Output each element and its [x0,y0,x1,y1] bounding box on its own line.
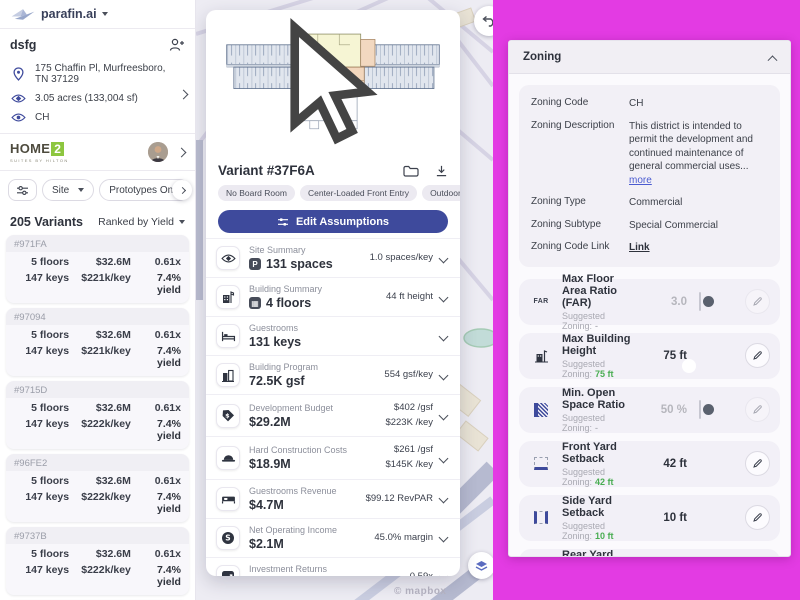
open-space-toggle[interactable] [699,400,701,419]
variants-list: #971FA 5 floors$32.6M0.61x 147 keys$221k… [0,233,195,600]
expand-chevron-icon[interactable] [439,411,449,421]
brand-caret-icon [102,12,108,16]
expand-chevron-icon[interactable] [439,572,449,576]
section-secondary: 1.0 spaces/key [370,251,433,266]
variant-card[interactable]: #9715D 5 floors$32.6M0.61x 147 keys$222k… [6,381,189,449]
filter-settings-button[interactable] [8,179,37,201]
filter-site-caret-icon [78,188,84,192]
zoning-panel-header[interactable]: Zoning [509,41,790,74]
section-value: 131 spaces [266,257,333,271]
mouse-cursor [206,18,460,152]
section-title: Guestrooms Revenue [249,486,366,496]
tag: No Board Room [218,185,295,201]
floorplan-preview [206,10,460,160]
pencil-icon [752,458,763,469]
sliders-icon [277,217,289,227]
control-value: 50 % [641,404,687,416]
zoning-panel: Zoning Zoning Code CH Zoning Description… [508,40,791,557]
layers-3d-icon [475,560,488,572]
zoning-subtype-label: Zoning Subtype [531,219,629,233]
map-attribution: © mapbox [394,586,447,597]
svg-text:S: S [225,533,230,542]
section-title: Net Operating Income [249,525,374,535]
filters-scroll-right-button[interactable] [172,180,192,200]
control-max-building-height: Max Building Height Suggested Zoning:75 … [519,333,780,379]
variant-yield: 7.4% yield [131,272,181,296]
zoning-description-label: Zoning Description [531,120,629,188]
section-secondary: $99.12 RevPAR [366,492,433,507]
control-rear-yard-setback: Rear Yard Setback Suggested Zoning:20 ft… [519,549,780,557]
brand-menu[interactable]: parafin.ai [0,0,195,29]
download-button[interactable] [435,165,448,177]
far-icon: FAR [534,298,549,305]
filter-site[interactable]: Site [42,179,94,201]
zoning-code-link[interactable]: Link [629,242,650,253]
zoning-description-text: This district is intended to permit the … [629,121,753,173]
zoning-code-label: Zoning Code [531,97,629,111]
svg-text:$: $ [225,411,230,419]
control-min-open-space: Min. Open Space Ratio Suggested Zoning:-… [519,387,780,433]
floors-badge: ▦ [249,297,261,309]
variant-cost: $32.6M [69,256,131,268]
front-setback-icon [529,457,553,470]
variant-yield: 7.4% yield [131,345,181,369]
bed-icon [216,324,240,348]
home2-number: 2 [51,142,64,156]
variant-title: Variant #37F6A [218,163,387,178]
section-value: $18.9M [249,457,291,471]
variant-floors: 5 floors [14,329,69,341]
section-secondary: 45.0% margin [374,531,433,546]
section-secondary-line1: $261 /gsf [385,443,433,458]
open-space-icon [529,403,553,417]
variant-floors: 5 floors [14,475,69,487]
control-title: Min. Open Space Ratio [562,387,641,411]
operator-row[interactable]: HOME 2 SUITES BY HILTON [0,134,195,171]
add-user-icon[interactable] [169,38,185,52]
control-side-yard-setback: Side Yard Setback Suggested Zoning:10 ft… [519,495,780,541]
variants-sort-label: Ranked by Yield [98,216,174,228]
control-max-far: FAR Max Floor Area Ratio (FAR) Suggested… [519,279,780,325]
expand-chevron-icon[interactable] [439,453,449,463]
section-title: Development Budget [249,403,385,413]
home2-word: HOME [10,142,50,155]
height-edit-button[interactable] [745,343,770,368]
section-value: $29.2M [249,415,291,429]
variants-sort-caret-icon [179,220,185,224]
building-summary-icon [216,285,240,309]
project-summary: dsfg 175 Chaffin Pl, Murfreesboro, TN 37… [0,29,195,134]
section-secondary-line1: $402 /gsf [385,401,433,416]
filter-bar: Site Prototypes Only Program [0,171,195,209]
section-title: Building Program [249,362,384,372]
home2-subtext: SUITES BY HILTON [10,158,69,163]
project-zoning-code: CH [35,112,49,123]
zoning-description-value: This district is intended to permit the … [629,120,768,188]
variant-per-key: $222k/key [69,564,131,588]
user-avatar[interactable] [148,142,168,162]
variant-per-key: $221k/key [69,272,131,296]
side-setback-icon [529,511,553,524]
expand-chevron-icon[interactable] [439,331,449,341]
section-building-summary[interactable]: Building Summary ▦4 floors 44 ft height [206,277,460,316]
section-building-program[interactable]: Building Program 72.5K gsf 554 gsf/key [206,355,460,394]
variant-cost: $32.6M [69,402,131,414]
variants-count: 205 Variants [10,215,83,229]
variant-multiple: 0.61x [131,329,181,341]
suggested-value: 10 ft [595,531,614,541]
variant-keys: 147 keys [14,491,69,515]
suggested-value: - [595,423,598,433]
parafin-logo-icon [10,6,36,22]
section-value: 72.5K gsf [249,374,305,388]
project-name: dsfg [10,38,36,52]
edit-assumptions-button[interactable]: Edit Assumptions [218,210,448,233]
section-secondary-line2: $145K /key [385,458,433,473]
section-hard-construction-costs[interactable]: Hard Construction Costs $18.9M $261 /gsf… [206,436,460,478]
variant-keys: 147 keys [14,272,69,296]
variant-per-key: $222k/key [69,491,131,515]
control-title: Max Floor Area Ratio (FAR) [562,273,641,309]
variants-header: 205 Variants Ranked by Yield [0,209,195,233]
section-secondary: 0.59x [410,570,433,576]
tag: Center-Loaded Front Entry [300,185,417,201]
control-value: 75 ft [641,350,687,362]
expand-chevron-icon[interactable] [439,533,449,543]
open-space-edit-button[interactable] [745,397,770,422]
filter-prototypes-label: Prototypes Only [109,185,180,196]
filter-site-label: Site [52,185,69,196]
brand-name: parafin.ai [41,7,97,21]
section-guestrooms-revenue[interactable]: Guestrooms Revenue $4.7M $99.12 RevPAR [206,479,460,518]
variant-cost: $32.6M [69,475,131,487]
zoning-subtype-value: Special Commercial [629,219,768,233]
variant-id: #971FA [6,235,189,252]
control-front-yard-setback: Front Yard Setback Suggested Zoning:42 f… [519,441,780,487]
variant-id: #97094 [6,308,189,325]
variant-card[interactable]: #9737B 5 floors$32.6M0.61x 147 keys$222k… [6,527,189,595]
overlay-highlight: Zoning Zoning Code CH Zoning Description… [493,0,800,600]
section-title: Guestrooms [249,323,433,333]
variant-per-key: $221k/key [69,345,131,369]
parking-badge: P [249,258,261,270]
expand-chevron-icon[interactable] [439,253,449,263]
sliders-icon [16,185,29,196]
project-zoning-row: CH [10,112,185,123]
section-secondary: 554 gsf/key [384,368,433,383]
project-address: 175 Chaffin Pl, Murfreesboro, TN 37129 [35,63,167,85]
section-secondary: 44 ft height [386,290,433,305]
price-tag-icon: $ [216,404,240,428]
pencil-icon [752,404,763,415]
folder-icon [403,165,419,177]
control-title: Max Building Height [562,333,641,357]
section-value: 4 floors [266,296,311,310]
variant-multiple: 0.61x [131,256,181,268]
section-secondary-line2: $223K /key [385,416,433,431]
dollar-circle-icon: S [216,526,240,550]
description-more-link[interactable]: more [629,175,652,186]
download-icon [435,165,448,177]
pencil-icon [752,350,763,361]
section-value: $4.7M [249,498,284,512]
variant-multiple: 0.61x [131,475,181,487]
expand-chevron-icon[interactable] [439,292,449,302]
map-3d-button[interactable] [468,552,495,579]
control-value: 10 ft [641,512,687,524]
suggested-prefix: Suggested Zoning: [562,413,605,433]
variant-per-key: $222k/key [69,418,131,442]
project-area: 3.05 acres (133,004 sf) [35,93,138,104]
zoning-code-link-label: Zoning Code Link [531,241,629,255]
section-net-operating-income[interactable]: S Net Operating Income $2.1M 45.0% margi… [206,518,460,557]
mapbox-wordmark: © mapbox [394,586,447,597]
tag: Outdoor Pool [422,185,460,201]
variant-yield: 7.4% yield [131,564,181,588]
edit-assumptions-label: Edit Assumptions [296,216,389,228]
variant-tags: No Board Room Center-Loaded Front Entry … [206,178,460,201]
section-title: Investment Returns [249,564,410,574]
variant-yield: 7.4% yield [131,418,181,442]
variant-id: #9737B [6,527,189,544]
suggested-value: 75 ft [595,369,614,379]
expand-chevron-icon[interactable] [439,494,449,504]
project-address-row: 175 Chaffin Pl, Murfreesboro, TN 37129 [10,63,185,85]
site-summary-icon [216,246,240,270]
zoning-type-value: Commercial [629,196,768,210]
operator-expand-chevron[interactable] [177,147,187,157]
far-edit-button[interactable] [745,289,770,314]
variant-floors: 5 floors [14,256,69,268]
suggested-value: 42 ft [595,477,614,487]
control-title: Rear Yard Setback [562,549,641,557]
far-toggle[interactable] [699,292,701,311]
variants-sort-control[interactable]: Ranked by Yield [98,216,185,228]
control-value: 3.0 [641,296,687,308]
zoning-code-icon [10,112,26,123]
section-investment-returns[interactable]: Investment Returns 7.3% yield 0.59x [206,557,460,576]
variant-card[interactable]: #97094 5 floors$32.6M0.61x 147 keys$221k… [6,308,189,376]
zoning-info-card: Zoning Code CH Zoning Description This d… [519,85,780,267]
zoning-code-value: CH [629,97,768,111]
variant-multiple: 0.61x [131,402,181,414]
section-title: Building Summary [249,284,386,294]
zoning-type-label: Zoning Type [531,196,629,210]
expand-chevron-icon[interactable] [439,370,449,380]
variant-cost: $32.6M [69,329,131,341]
control-value: 42 ft [641,458,687,470]
buildings-icon [216,363,240,387]
save-to-folder-button[interactable] [403,165,419,177]
section-development-budget[interactable]: $ Development Budget $29.2M $402 /gsf $2… [206,394,460,436]
home2-logo: HOME 2 SUITES BY HILTON [10,142,69,163]
section-secondary: $261 /gsf $145K /key [385,443,433,472]
side-setback-edit-button[interactable] [745,505,770,530]
section-title: Site Summary [249,245,370,255]
variant-yield: 7.4% yield [131,491,181,515]
collapse-chevron-icon[interactable] [768,55,778,65]
section-secondary: $402 /gsf $223K /key [385,401,433,430]
variant-floors: 5 floors [14,402,69,414]
project-area-row: 3.05 acres (133,004 sf) [10,93,185,104]
front-setback-edit-button[interactable] [745,451,770,476]
variant-id: #96FE2 [6,454,189,471]
suggested-value: - [595,321,598,331]
zoning-title: Zoning [523,51,561,63]
bed-revenue-icon [216,487,240,511]
variant-keys: 147 keys [14,345,69,369]
section-value: $2.1M [249,537,284,551]
control-title: Front Yard Setback [562,441,641,465]
variant-multiple: 0.61x [131,548,181,560]
section-site-summary[interactable]: Site Summary P131 spaces 1.0 spaces/key [206,238,460,277]
site-area-icon [10,93,26,104]
left-sidebar: parafin.ai dsfg 175 Chaffin Pl, Murfrees… [0,0,196,600]
suggested-prefix: Suggested Zoning: [562,311,605,331]
variant-floors: 5 floors [14,548,69,560]
variant-card[interactable]: #96FE2 5 floors$32.6M0.61x 147 keys$222k… [6,454,189,522]
variant-keys: 147 keys [14,418,69,442]
section-title: Hard Construction Costs [249,445,385,455]
section-guestrooms[interactable]: Guestrooms 131 keys [206,316,460,355]
variant-detail-card: Variant #37F6A No Board Room Center-Load… [206,10,460,576]
section-value: 131 keys [249,335,301,349]
pencil-icon [752,296,763,307]
location-pin-icon [10,67,26,81]
control-title: Side Yard Setback [562,495,641,519]
returns-chart-icon [216,565,240,576]
hard-hat-icon [216,446,240,470]
pencil-icon [752,512,763,523]
building-height-icon [529,349,553,363]
variant-keys: 147 keys [14,564,69,588]
variant-cost: $32.6M [69,548,131,560]
variant-id: #9715D [6,381,189,398]
variant-card[interactable]: #971FA 5 floors$32.6M0.61x 147 keys$221k… [6,235,189,303]
